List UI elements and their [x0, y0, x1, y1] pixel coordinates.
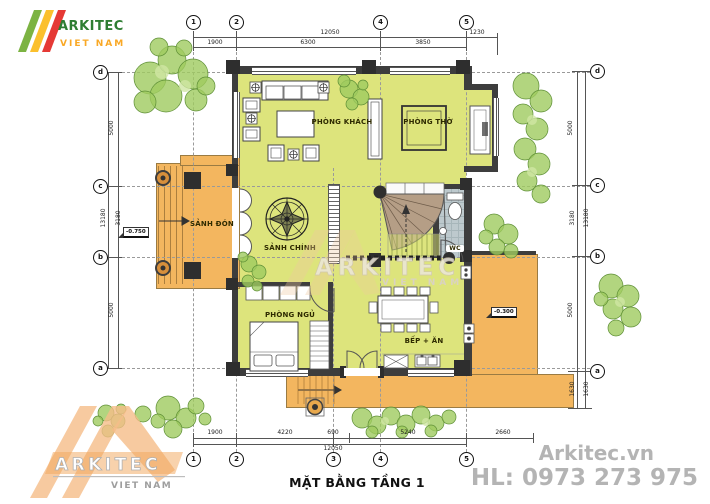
grid-bubble-top-5: 5 [459, 15, 474, 30]
grid-bubble-right-b: b [590, 249, 605, 264]
bedroom-furniture [246, 286, 329, 371]
floor-plan-drawing: 12050 1230 1900 6300 3850 1900 4220 690 … [0, 0, 710, 504]
tree-icon [513, 73, 552, 203]
dim-right-seg1: 5000 [567, 113, 575, 143]
grid-bubble-left-c: c [93, 179, 108, 194]
grid-bubble-bot-3: 3 [326, 452, 341, 467]
drawing-title: MẶT BẰNG TẦNG 1 [257, 475, 457, 490]
dim-bot-ext: 2660 [481, 429, 525, 437]
dim-bot-seg3: 690 [319, 429, 347, 437]
terrace-column [306, 398, 324, 416]
footer-website: Arkitec.vn [539, 441, 654, 465]
corner-watermark-country: VIET NAM [111, 481, 172, 491]
grid-bubble-top-4: 4 [373, 15, 388, 30]
room-label-bedroom: PHÒNG NGỦ [255, 311, 325, 319]
room-label-porch: SẢNH ĐÓN [182, 220, 242, 228]
grid-bubble-top-1: 1 [186, 15, 201, 30]
grid-bubble-left-d: d [93, 65, 108, 80]
dim-top-ext: 1230 [462, 29, 492, 37]
dim-left-total: 13180 [100, 203, 108, 233]
grid-bubble-bot-4: 4 [373, 452, 388, 467]
logo-country-text: VIET NAM [60, 39, 125, 49]
tree-icon [594, 274, 641, 336]
center-watermark-country: VIET NAM [382, 278, 463, 288]
dim-right-seg3: 5000 [567, 295, 575, 325]
level-marker-porch: -0.750 [123, 227, 149, 238]
dim-left-seg3: 5000 [108, 295, 116, 325]
porch-round-column [156, 171, 170, 275]
grid-bubble-right-a: a [590, 364, 605, 379]
corner-watermark-brand: ARKITEC [55, 455, 161, 475]
dim-right-total: 13180 [583, 203, 591, 233]
dim-left-seg2: 3180 [115, 203, 123, 233]
bay-cabinet [470, 106, 490, 154]
level-marker-patio: -0.300 [491, 307, 517, 318]
grid-bubble-right-d: d [590, 64, 605, 79]
dim-bot-seg4: 5240 [386, 429, 430, 437]
dim-top-seg3: 3850 [401, 39, 445, 47]
grid-bubble-right-c: c [590, 178, 605, 193]
dim-right-ext2: 1630 [583, 374, 591, 404]
dim-right-ext1: 1630 [569, 374, 577, 404]
grid-bubble-left-a: a [93, 361, 108, 376]
brand-logo: ARKITEC VIET NAM [12, 4, 132, 64]
tree-icon [338, 75, 369, 110]
grid-bubble-bot-1: 1 [186, 452, 201, 467]
dim-top-seg1: 1900 [193, 39, 237, 47]
dim-left-seg1: 5000 [108, 113, 116, 143]
center-watermark: ARKITEC VIET NAM [270, 215, 480, 295]
altar-table [402, 106, 446, 150]
corner-watermark-logo: ARKITEC VIET NAM [15, 390, 210, 504]
dim-top-total: 12050 [305, 29, 355, 37]
dim-bot-seg2: 4220 [263, 429, 307, 437]
room-label-worship: PHÒNG THỜ [398, 118, 458, 126]
partition-cabinet [368, 99, 382, 159]
grid-bubble-top-2: 2 [229, 15, 244, 30]
grid-bubble-left-b: b [93, 250, 108, 265]
tree-icon [479, 214, 518, 258]
footer-hotline: HL: 0973 273 975 [471, 465, 698, 491]
tree-icon [134, 38, 215, 113]
tree-icon [238, 252, 266, 291]
logo-brand-text: ARKITEC [58, 19, 124, 34]
room-label-kitchen: BẾP + ĂN [394, 337, 454, 345]
dim-right-seg2: 3180 [569, 203, 577, 233]
dim-top-seg2: 6300 [286, 39, 330, 47]
room-label-living: PHÒNG KHÁCH [302, 118, 382, 126]
grid-bubble-bot-2: 2 [229, 452, 244, 467]
